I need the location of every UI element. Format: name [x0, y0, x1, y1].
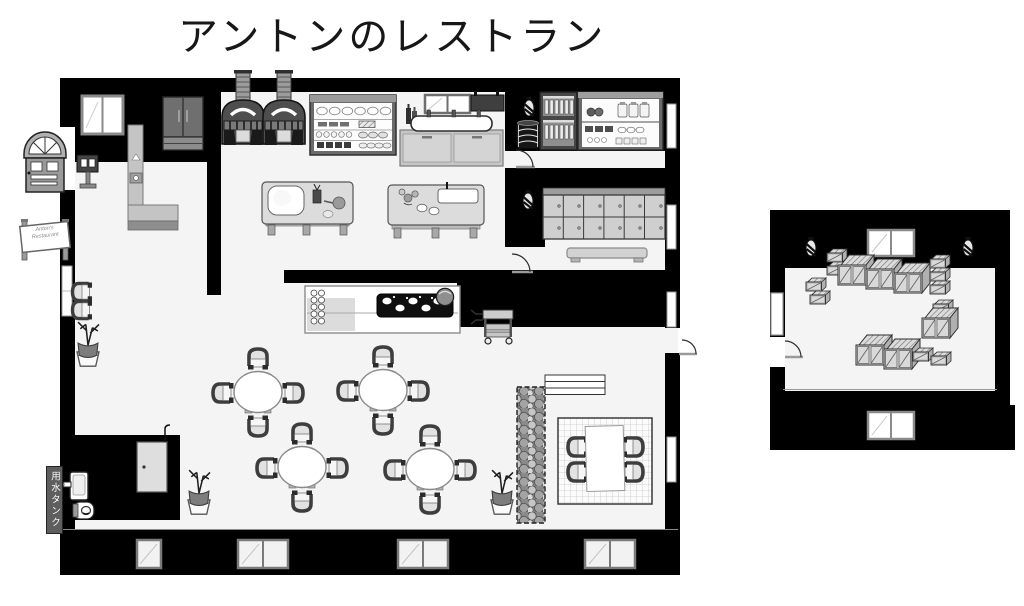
sliding-door — [137, 442, 167, 492]
wall-divider-thick — [457, 283, 680, 327]
pot-rack — [471, 95, 504, 111]
dining-side-window-upper — [667, 292, 676, 327]
right-exit-door — [679, 340, 697, 354]
dish-shelf — [310, 95, 396, 155]
wall-kitchen-dining-divider — [284, 270, 680, 283]
storage-building-plan — [770, 205, 1015, 455]
tatami-chair-2 — [568, 462, 589, 482]
cooktop-counter — [305, 286, 460, 333]
pantry-side-window — [667, 104, 676, 148]
storage-top-window — [868, 230, 914, 256]
storage-floorplan — [770, 205, 1015, 455]
stacked-chair-1 — [73, 283, 92, 302]
low-table — [585, 426, 625, 492]
locker-cabinet — [543, 188, 665, 239]
staffroom-side-window — [667, 205, 676, 249]
dining-side-window-lower — [667, 437, 676, 482]
arched-entrance-door — [24, 132, 66, 192]
storage-door-opening — [770, 337, 785, 367]
floorplan-page: アントンのレストラン — [0, 0, 1024, 606]
storage-wall-bottom-inner — [783, 391, 997, 405]
tatami-chair-3 — [623, 437, 644, 457]
restaurant-building-plan: 用水タンク Anton's Restaurant — [18, 70, 698, 580]
wardrobe — [163, 97, 203, 150]
bottom-window-double-3 — [585, 540, 635, 568]
hedge-planter — [517, 387, 545, 523]
storage-side-window — [771, 293, 783, 335]
plank-shelf — [545, 375, 605, 395]
storage-wall-top — [770, 210, 1010, 222]
wall-kitchen-column — [207, 92, 221, 295]
storage-bottom-window — [868, 412, 914, 439]
triple-sink — [411, 116, 492, 131]
food-shelf — [578, 92, 663, 150]
water-tank-sign: 用水タンク — [46, 466, 63, 534]
bottom-window-double-2 — [398, 540, 448, 568]
page-title: アントンのレストラン — [178, 4, 606, 62]
bottom-window-double-1 — [238, 540, 288, 568]
storage-wall-right — [995, 210, 1010, 423]
barrel — [516, 121, 540, 150]
stacked-chair-2 — [73, 301, 92, 320]
tatami-chair-4 — [623, 462, 644, 482]
wall-staffroom-left — [505, 182, 545, 247]
wine-rack — [540, 92, 577, 150]
restaurant-floorplan — [18, 70, 698, 580]
bottle — [406, 108, 411, 124]
